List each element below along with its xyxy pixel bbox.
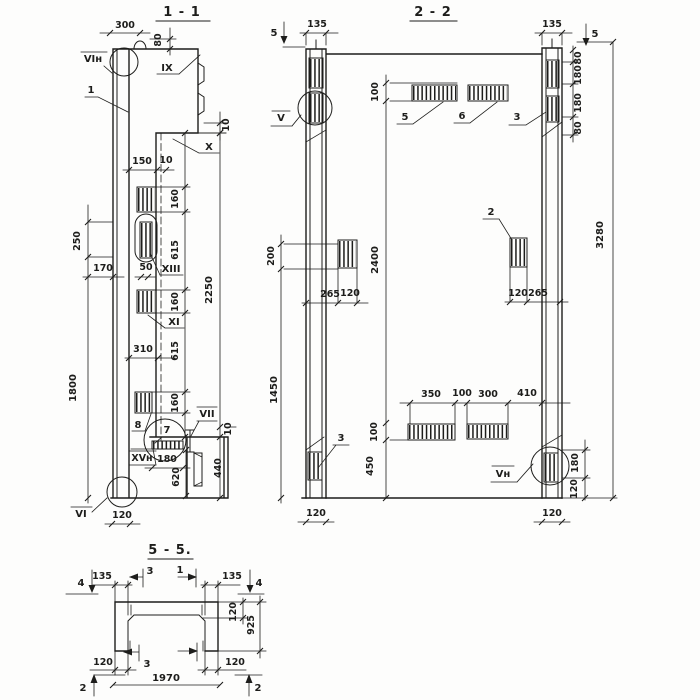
dim-chain-outer-right — [198, 133, 236, 498]
dim-line-3280 — [562, 42, 617, 498]
section-2-2: 2 - 2 — [266, 5, 617, 525]
dim-120c: 120 — [569, 479, 580, 499]
mark-4-left: 4 — [78, 578, 85, 589]
dim-120bl: 120 — [306, 508, 326, 519]
section-5-5-title: 5 - 5. — [148, 543, 191, 558]
dim-135r-55: 135 — [222, 571, 242, 582]
dim-120: 120 — [112, 510, 132, 521]
dim-170: 170 — [93, 263, 113, 274]
mark-3-bottom: 3 — [144, 659, 151, 670]
dim-135r: 135 — [542, 19, 562, 30]
dim-300: 300 — [115, 20, 135, 31]
dim-265l: 265 — [320, 289, 340, 300]
label-pos7: 7 — [164, 425, 171, 436]
dim-120br: 120 — [542, 508, 562, 519]
dim-160c: 160 — [170, 393, 181, 413]
dim-chain-left — [88, 205, 113, 503]
detail-circle-bottom — [107, 477, 137, 507]
section-5-5-geometry — [115, 602, 218, 651]
bracket-plate-bevels — [194, 453, 202, 486]
lcol-diagonal-bottom — [306, 437, 324, 450]
section-1-1-labels: VIн 1 IX X XIII XI 8 7 VII XVн VI — [71, 52, 219, 520]
dim-120bl-55: 120 — [93, 657, 113, 668]
dim-150: 150 — [132, 156, 152, 167]
dim-line-bottom-chain — [400, 403, 570, 424]
label-pos3b: 3 — [338, 433, 345, 444]
dim-300b: 300 — [478, 389, 498, 400]
label-v-leader — [271, 111, 301, 126]
dim-350: 350 — [421, 389, 441, 400]
label-pos1-leader — [85, 97, 128, 112]
section-2-2-title: 2 - 2 — [414, 5, 452, 20]
mark-2-left-lines — [94, 675, 125, 696]
dim-135l-55: 135 — [92, 571, 112, 582]
dim-180: 180 — [157, 454, 177, 465]
label-vi: VI — [75, 509, 86, 520]
dim-120br-55: 120 — [225, 657, 245, 668]
label-ix: IX — [161, 63, 173, 74]
dim-100a: 100 — [370, 82, 381, 102]
bracket-plate — [194, 453, 202, 486]
label-xv-n: XVн — [131, 453, 152, 464]
channel-inner — [128, 615, 205, 651]
dim-1450: 1450 — [269, 376, 280, 404]
dim-chain-center — [386, 75, 457, 498]
dim-615a: 615 — [170, 240, 181, 260]
dim-250: 250 — [72, 231, 83, 251]
mark-4-right: 4 — [256, 578, 263, 589]
mark-5-left: 5 — [271, 28, 278, 39]
mark-2-left: 2 — [80, 683, 87, 694]
section-2-2-geometry — [298, 39, 569, 498]
detail-circle-top — [110, 48, 138, 76]
dim-620: 620 — [171, 467, 182, 487]
dim-10c: 10 — [223, 422, 234, 436]
dim-80a: 80 — [573, 51, 584, 65]
dim-180b: 180 — [573, 93, 584, 113]
dim-180c: 180 — [570, 453, 581, 473]
dim-160b: 160 — [170, 292, 181, 312]
dim-50: 50 — [139, 262, 153, 273]
dim-line-925 — [218, 596, 266, 658]
label-pos5: 5 — [402, 112, 409, 123]
dim-2400: 2400 — [370, 246, 381, 274]
dim-80: 80 — [153, 33, 164, 47]
label-pos6: 6 — [459, 111, 466, 122]
dim-100b: 100 — [369, 422, 380, 442]
dim-3280: 3280 — [595, 221, 606, 249]
dim-1800: 1800 — [68, 374, 79, 402]
channel-outline — [115, 602, 218, 651]
dim-310: 310 — [133, 344, 153, 355]
dim-120-55: 120 — [228, 602, 239, 622]
anchor-marks — [130, 605, 203, 651]
dim-450: 450 — [365, 456, 376, 476]
label-vii: VII — [199, 409, 214, 420]
label-v-n: Vн — [496, 469, 511, 480]
label-xi: XI — [168, 317, 179, 328]
section-5-5-dimensions: 4 135 3 1 135 4 120 925 — [66, 565, 266, 696]
mark-5-left-lines — [283, 22, 305, 47]
section-5-5: 5 - 5. 4 135 3 1 135 4 — [66, 543, 266, 696]
label-pos1: 1 — [88, 85, 95, 96]
lcol-diagonal-top — [306, 130, 326, 142]
mark-2-right: 2 — [255, 683, 262, 694]
dim-10-top: 10 — [221, 118, 232, 132]
section-1-1-title: 1 - 1 — [163, 5, 201, 20]
label-vi-n: VIн — [84, 54, 102, 65]
edge-keyways — [198, 63, 204, 115]
dim-1970: 1970 — [152, 673, 180, 684]
dim-180a: 180 — [573, 65, 584, 85]
dim-135l: 135 — [307, 19, 327, 30]
dim-80b: 80 — [573, 121, 584, 135]
dim-160a: 160 — [170, 189, 181, 209]
label-pos8: 8 — [135, 420, 142, 431]
dim-120r: 120 — [508, 288, 528, 299]
label-xiii: XIII — [162, 264, 181, 275]
lifting-loop — [134, 41, 146, 49]
mark-3-top: 3 — [147, 566, 154, 577]
dim-10b: 10 — [159, 155, 173, 166]
label-pos3b-leader — [318, 445, 349, 468]
dim-265r: 265 — [528, 288, 548, 299]
label-x: X — [205, 142, 213, 153]
dim-chain-right — [152, 133, 190, 437]
label-v: V — [277, 113, 285, 124]
drawing-canvas: 1 - 1 — [0, 0, 700, 700]
mark-1-top: 1 — [177, 565, 184, 576]
dim-2250: 2250 — [204, 276, 215, 304]
dim-100c: 100 — [452, 388, 472, 399]
label-pos2-leader — [483, 219, 512, 240]
dim-925: 925 — [246, 615, 257, 635]
rcol-diagonals — [542, 122, 562, 447]
dim-line-135l — [300, 33, 338, 45]
dim-200: 200 — [266, 246, 277, 266]
panel-edges — [302, 54, 562, 498]
dim-440: 440 — [213, 458, 224, 478]
blueprint-svg: 1 - 1 — [0, 0, 700, 700]
dim-120l: 120 — [340, 288, 360, 299]
label-pos3a: 3 — [514, 112, 521, 123]
dim-410: 410 — [517, 388, 537, 399]
label-pos2: 2 — [488, 207, 495, 218]
section-1-1: 1 - 1 — [68, 5, 236, 527]
mark-5-right: 5 — [592, 29, 599, 40]
